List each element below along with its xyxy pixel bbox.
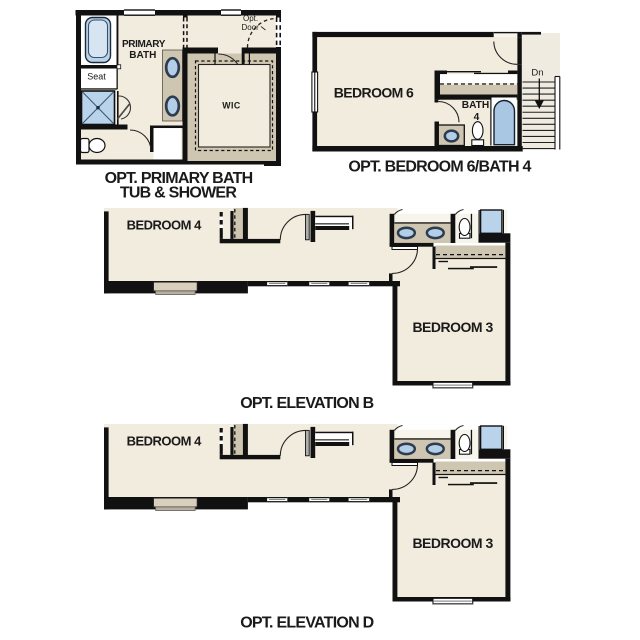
svg-text:WIC: WIC: [222, 101, 241, 111]
svg-text:Dn: Dn: [531, 68, 543, 79]
svg-text:4: 4: [474, 112, 480, 123]
svg-text:Opt.: Opt.: [243, 14, 258, 23]
svg-text:BEDROOM 3: BEDROOM 3: [412, 535, 493, 551]
svg-text:BEDROOM 6: BEDROOM 6: [334, 85, 414, 101]
svg-text:Door: Door: [242, 23, 260, 32]
svg-text:OPT. BEDROOM 6/BATH 4: OPT. BEDROOM 6/BATH 4: [348, 158, 531, 175]
svg-text:TUB & SHOWER: TUB & SHOWER: [120, 184, 238, 201]
svg-text:Seat: Seat: [87, 72, 106, 82]
svg-text:BATH: BATH: [129, 50, 156, 61]
svg-text:OPT. ELEVATION D: OPT. ELEVATION D: [240, 615, 373, 632]
svg-text:PRIMARY: PRIMARY: [122, 39, 166, 50]
svg-text:BEDROOM 4: BEDROOM 4: [127, 218, 203, 233]
svg-text:BEDROOM 3: BEDROOM 3: [412, 319, 493, 335]
svg-text:BEDROOM 4: BEDROOM 4: [127, 434, 203, 449]
svg-text:BATH: BATH: [462, 100, 490, 111]
svg-text:OPT. ELEVATION B: OPT. ELEVATION B: [240, 395, 373, 412]
